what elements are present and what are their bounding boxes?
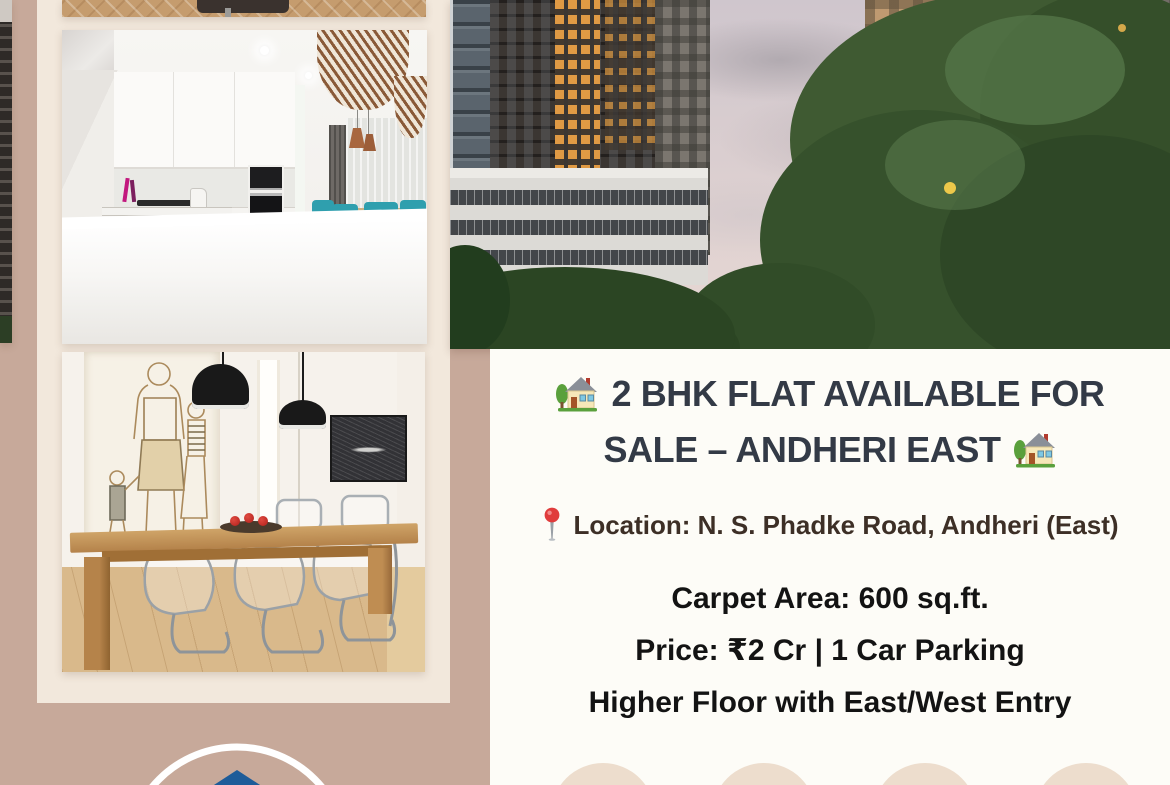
detail-price-parking: Price: ₹2 Cr | 1 Car Parking [490, 625, 1170, 677]
logo-ring [127, 747, 347, 785]
house-icon [1013, 430, 1057, 470]
kettle [190, 188, 207, 209]
red-apple [230, 516, 240, 526]
real-estate-poster: { "poster": { "headline": { "line1": "2 … [0, 0, 1170, 785]
red-apple [258, 516, 268, 526]
headline-text-line2: SALE – ANDHERI EAST [603, 422, 1000, 478]
location-row: Location: N. S. Phadke Road, Andheri (Ea… [490, 505, 1170, 545]
kitchen-island [62, 220, 427, 344]
listing-headline: 2 BHK FLAT AVAILABLE FOR SALE – ANDHERI … [490, 366, 1170, 478]
kitchen-wall-diagonal [62, 70, 122, 190]
furniture-leg [225, 8, 231, 17]
furniture-base [197, 0, 289, 13]
ceiling-spotlight [305, 72, 312, 79]
table-leg-right [368, 548, 392, 614]
table-leg-left [84, 557, 110, 670]
listing-details: Carpet Area: 600 sq.ft. Price: ₹2 Cr | 1… [490, 573, 1170, 729]
black-pendant-lamp-small [279, 400, 326, 429]
pushpin-icon [541, 507, 563, 543]
cropped-left-photo-strip [0, 0, 12, 343]
wood-floor-photo [62, 0, 426, 17]
built-in-microwave [250, 167, 282, 190]
kitchen-photo [62, 30, 427, 344]
location-text: Location: N. S. Phadke Road, Andheri (Ea… [573, 510, 1118, 541]
strip-sky [0, 0, 12, 22]
strip-trees [0, 316, 12, 343]
logo-diamond-icon [157, 770, 317, 785]
headline-line-1: 2 BHK FLAT AVAILABLE FOR [490, 366, 1170, 422]
trees-foreground [450, 0, 1170, 349]
detail-floor-entry: Higher Floor with East/West Entry [490, 677, 1170, 729]
cityscape-photo [450, 0, 1170, 349]
upper-cabinets [114, 72, 295, 169]
dining-room-photo [62, 352, 425, 672]
ceiling-spotlight [260, 46, 269, 55]
black-pendant-lamp [192, 364, 249, 409]
headline-line-2: SALE – ANDHERI EAST [490, 422, 1170, 478]
induction-hob [137, 200, 192, 206]
pendant-cord [302, 352, 304, 402]
dark-curtain [329, 125, 346, 205]
brand-logo [127, 747, 347, 785]
house-icon [555, 374, 599, 414]
fruit-tray [220, 521, 282, 533]
glass-wall [295, 85, 305, 213]
headline-text-line1: 2 BHK FLAT AVAILABLE FOR [611, 366, 1104, 422]
detail-carpet-area: Carpet Area: 600 sq.ft. [490, 573, 1170, 625]
framed-artwork [330, 415, 407, 482]
red-apple [244, 513, 254, 523]
